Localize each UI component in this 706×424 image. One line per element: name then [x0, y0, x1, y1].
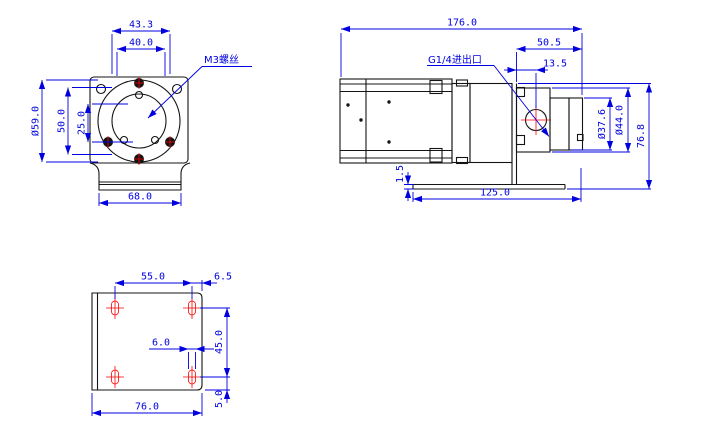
- center-mark: [134, 77, 144, 89]
- pump-mount-block: [470, 84, 512, 163]
- flange-plate-outline: [90, 77, 188, 163]
- extension-line: [149, 349, 214, 369]
- dim-bottom-plate-width: 76.0: [135, 402, 159, 413]
- dim-front-inner-height: 25.0: [77, 111, 88, 135]
- pump-screw: [517, 136, 525, 145]
- dim-side-port-offset: 13.5: [543, 59, 567, 70]
- motor-cooling-rails: [340, 84, 452, 158]
- slot-center-mark: [183, 297, 201, 319]
- bolt-circle-holes: [121, 92, 159, 144]
- screw-dot: [347, 104, 349, 106]
- flange-circle: [98, 80, 180, 162]
- bolt-hole: [136, 92, 143, 99]
- dim-front-flange-diameter: Ø59.0: [30, 106, 42, 136]
- corner-hole: [173, 85, 182, 94]
- screw-dot: [388, 101, 390, 103]
- pump-cylinder: [550, 98, 569, 150]
- dim-side-flange-diameter: Ø44.0: [614, 105, 626, 135]
- dim-side-base-thickness: 1.5: [395, 165, 406, 183]
- extension-line: [205, 377, 230, 390]
- screw-dot: [388, 141, 390, 143]
- coupling-flange: [452, 84, 470, 163]
- dim-side-body-diameter: Ø37.6: [596, 109, 608, 139]
- dim-front-mid-height: 50.0: [57, 109, 68, 133]
- drawing-canvas: 43.3 40.0 M3螺丝 Ø59.0 50.0 25.0 68.0: [0, 0, 706, 424]
- extension-line: [117, 52, 165, 76]
- front-view: 43.3 40.0 M3螺丝 Ø59.0 50.0 25.0 68.0: [30, 20, 253, 207]
- screw-dot: [360, 119, 362, 121]
- slot-center-mark: [106, 297, 124, 319]
- leader-arrow: [148, 67, 202, 119]
- m3-screw-callout: M3螺丝: [204, 54, 239, 66]
- port-callout: G1/4进出口: [428, 53, 482, 66]
- extension-line: [518, 84, 651, 190]
- extension-line: [192, 280, 202, 291]
- engineering-drawing: 43.3 40.0 M3螺丝 Ø59.0 50.0 25.0 68.0: [0, 0, 706, 424]
- motor-screw-dots: [347, 101, 390, 143]
- slot-center-mark: [106, 366, 124, 388]
- dim-front-pilot-width: 40.0: [129, 38, 153, 49]
- dim-side-overall-height: 76.8: [636, 124, 647, 148]
- bottom-view: 55.0 6.5 45.0 5.0 6.0 76.0: [92, 272, 232, 417]
- bracket-fold-lines: [99, 182, 181, 185]
- bracket-plate: [512, 84, 517, 185]
- dim-side-base-length: 125.0: [480, 188, 510, 199]
- bracket-outline: [90, 163, 190, 190]
- corner-hole: [97, 85, 106, 94]
- base-plate-outline: [92, 293, 202, 390]
- pump-screw: [517, 88, 525, 97]
- slot-center-mark: [183, 366, 201, 388]
- screw-center-marks: [103, 77, 175, 165]
- dim-bottom-slot-width: 6.0: [152, 338, 170, 349]
- dim-front-hole-span: 43.3: [129, 20, 153, 31]
- extension-line: [517, 70, 537, 108]
- dim-bottom-edge-offset-x: 6.5: [214, 272, 232, 283]
- leader-arrow: [494, 66, 549, 137]
- dim-bottom-slot-span-y: 45.0: [214, 330, 225, 354]
- dim-bottom-edge-offset-y: 5.0: [214, 390, 225, 408]
- center-mark: [165, 136, 175, 148]
- dim-front-base-width: 68.0: [128, 192, 152, 203]
- dim-side-overall-length: 176.0: [447, 18, 477, 29]
- pump-endcap: [569, 98, 583, 150]
- dim-side-head-length: 50.5: [537, 38, 561, 49]
- side-view: 176.0 50.5 13.5 G1/4进出口 Ø37.6 Ø44.0 76.8…: [340, 18, 651, 203]
- dim-bottom-slot-span-x: 55.0: [141, 272, 165, 283]
